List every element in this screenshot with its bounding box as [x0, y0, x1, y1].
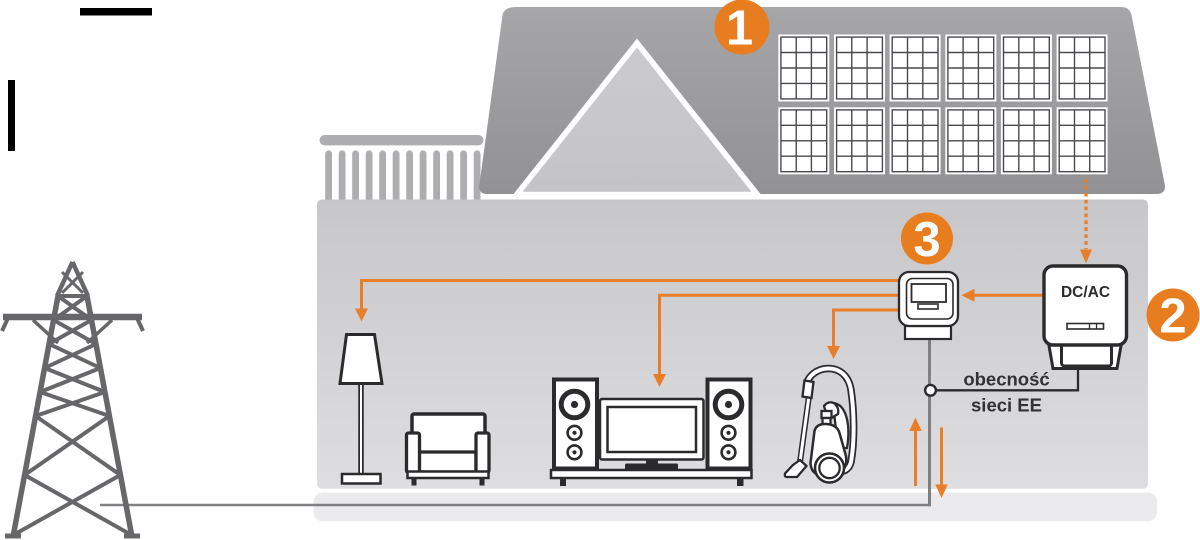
svg-text:1: 1 — [726, 2, 753, 56]
svg-text:2: 2 — [1159, 290, 1186, 344]
svg-text:DC/AC: DC/AC — [1061, 284, 1110, 301]
svg-text:sieci EE: sieci EE — [971, 395, 1042, 416]
svg-text:obecność: obecność — [963, 369, 1049, 390]
svg-text:3: 3 — [913, 213, 940, 267]
